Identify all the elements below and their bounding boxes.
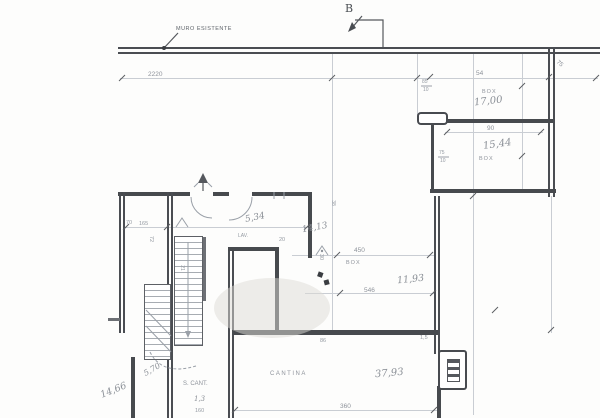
wall <box>437 386 441 418</box>
floorplan-canvas: MURO ESISTENTE B 2220 54 85 10 BOX 17,00… <box>0 0 600 418</box>
outer-wall-left <box>119 192 125 333</box>
room-area: 15,44 <box>482 137 512 152</box>
existing-wall-top <box>118 47 600 54</box>
room-label: BOX <box>479 156 494 162</box>
wall <box>275 250 279 333</box>
staircase-main <box>174 236 203 346</box>
room-label: LAV. <box>238 233 248 239</box>
reference-line <box>551 196 552 333</box>
wall <box>203 237 206 301</box>
room-area: 14,66 <box>99 380 128 400</box>
room-label: BOX <box>482 89 497 95</box>
wall-cantina-top <box>232 330 438 335</box>
staircase-winder <box>144 284 171 360</box>
dim-label: 10 <box>440 158 446 164</box>
wall <box>118 192 190 196</box>
dim-label: 75 <box>555 60 564 69</box>
dim-label: 2220 <box>148 71 162 78</box>
room-area: 11,93 <box>396 273 424 287</box>
dim-label: 72 <box>148 236 154 242</box>
wall <box>213 192 229 196</box>
room-label: CANTINA <box>270 371 307 377</box>
dim-label: 86 <box>320 338 326 344</box>
wall <box>443 119 553 123</box>
room-area: 5,34 <box>244 211 266 225</box>
wall <box>252 192 312 196</box>
column-mark <box>317 271 323 277</box>
dim-label: 70 <box>126 220 132 226</box>
dim-label: 450 <box>354 247 365 254</box>
door-panel <box>417 112 448 125</box>
room-area: 14,13 <box>301 221 328 235</box>
section-arrow-icon <box>348 16 383 47</box>
dim-label: 20 <box>279 237 285 243</box>
column-mark <box>324 279 330 285</box>
section-b-label: B <box>345 2 353 15</box>
wall <box>430 189 556 193</box>
room-area: 17,00 <box>474 95 504 109</box>
wall <box>228 247 279 251</box>
dim-label: 90 <box>487 125 494 132</box>
shaft-hatch <box>447 359 460 382</box>
dim-label: 546 <box>364 287 375 294</box>
dimension-line <box>445 132 543 133</box>
dim-label: 75 <box>439 150 445 156</box>
dim-label: 160 <box>195 408 204 414</box>
dimension-line <box>125 227 310 228</box>
wall <box>108 318 120 321</box>
drawing-overlay <box>0 0 600 418</box>
existing-wall-label: MURO ESISTENTE <box>176 26 232 32</box>
dim-label: 30 <box>318 254 324 260</box>
dim-label: 1,5 <box>420 335 428 341</box>
reference-line <box>332 53 333 330</box>
dim-label: 21 <box>179 265 185 271</box>
dim-label: 360 <box>340 403 351 410</box>
stair-label: S. CANT. <box>183 381 208 387</box>
entry-arrow-icon <box>194 173 212 191</box>
dimension-line <box>292 255 435 256</box>
dim-label: 38 <box>330 200 336 206</box>
room-area: 37,93 <box>375 367 404 380</box>
dim-label: 10 <box>423 87 429 93</box>
stair-note: 1,3 <box>194 395 205 403</box>
reference-line <box>417 53 418 115</box>
door-arc-icon <box>191 197 212 218</box>
room-label: BOX <box>346 260 361 266</box>
dimension-line <box>120 78 598 79</box>
stair-note: 5,70 <box>142 361 162 378</box>
dim-label: 165 <box>139 221 148 227</box>
dim-label: 85 <box>422 79 428 85</box>
wall <box>131 357 135 418</box>
dim-label: 54 <box>476 70 483 77</box>
wall <box>431 121 434 192</box>
door-chevron-icon <box>176 218 188 227</box>
dimension-line <box>232 410 437 411</box>
